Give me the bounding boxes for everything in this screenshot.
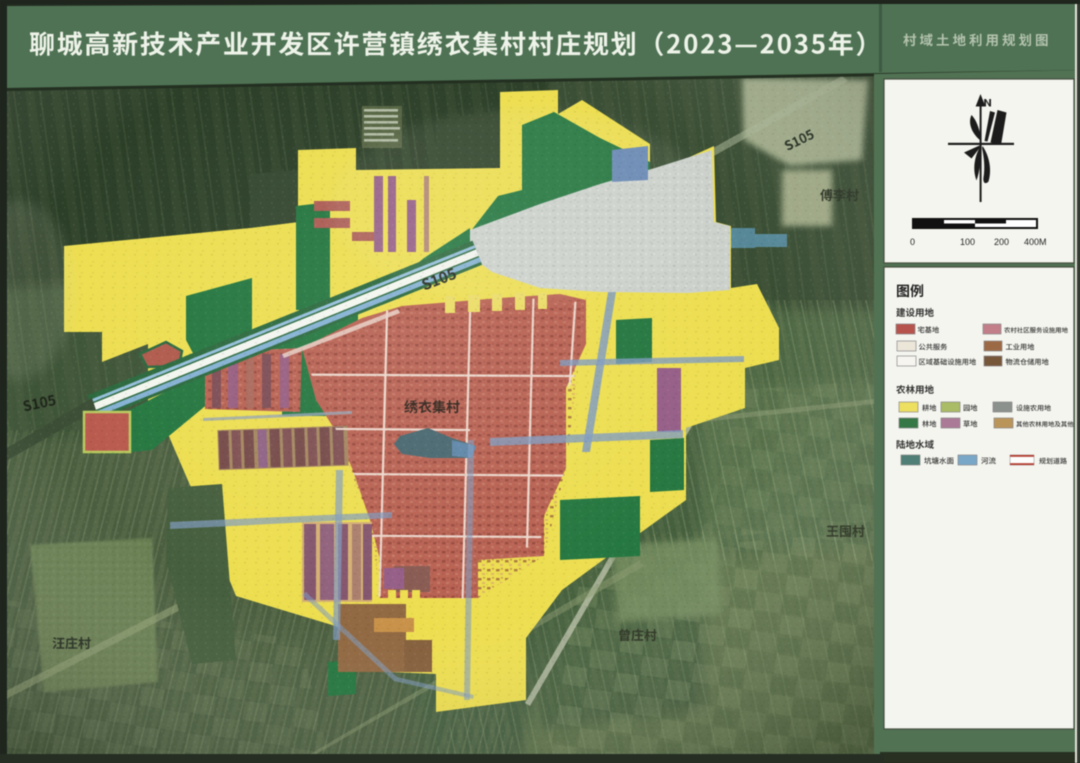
svg-text:400M: 400M — [1024, 237, 1047, 247]
svg-text:0: 0 — [910, 237, 915, 247]
svg-text:100: 100 — [960, 237, 975, 247]
svg-text:200: 200 — [994, 237, 1009, 247]
